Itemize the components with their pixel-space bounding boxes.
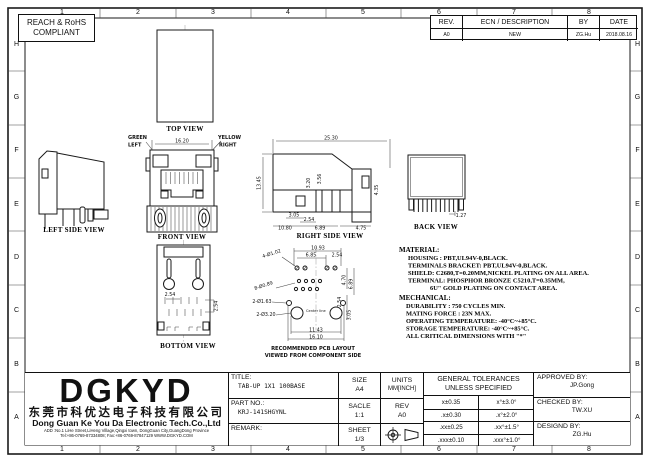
rev-row: REV A0	[381, 398, 423, 423]
mechanical-heading: MECHANICAL:	[399, 294, 451, 302]
zone-row: B	[10, 360, 23, 370]
mechanical-line: OPERATING TEMPERATURE: -40°C~+85°C.	[406, 318, 537, 325]
tolerance-value: .xxx±0.10	[424, 434, 479, 447]
tolerances-cell: GENERAL TOLERANCES UNLESS SPECIFIED x±0.…	[423, 373, 533, 446]
back-view-outline	[408, 155, 465, 199]
led-left-label-2: LEFT	[128, 143, 142, 149]
checked-row: CHECKED BY: TW.XU	[534, 397, 630, 421]
pcb-dim-254r: 2.54	[337, 297, 343, 308]
pcb-holes	[294, 279, 321, 290]
designed-value: ZG.Hu	[537, 430, 627, 438]
approved-row: APPROVED BY: JP.Gong	[534, 373, 630, 397]
third-angle-projection-icon	[383, 426, 421, 444]
material-line: TERMINAL: PHOSPHOR BRONZE C5210,T=0.35MM…	[408, 278, 565, 285]
tolerance-value: x°±3.0°	[479, 396, 534, 409]
company-cell: DGKYD 东莞市科优达电子科技有限公司 Dong Guan Ke You Da…	[25, 373, 228, 446]
pcb-dim-689: 6.89	[349, 279, 355, 290]
sheet-value: 1/3	[355, 435, 364, 444]
zone-col: 7	[506, 445, 522, 455]
zone-row: G	[631, 93, 644, 103]
engineering-drawing-sheet: { "sheet": { "compliance": ["REACH & RoH…	[0, 0, 650, 462]
back-view-pins	[409, 199, 464, 212]
zone-row: A	[631, 413, 644, 423]
material-line: 6U" GOLD PLATING ON CONTACT AREA.	[430, 285, 558, 292]
pcb-label-line1: RECOMMENDED PCB LAYOUT	[271, 346, 355, 352]
zone-row: F	[631, 146, 644, 156]
material-line: HOUSING : PBT,UL94V-0,BLACK.	[408, 255, 508, 262]
rev-label: REV	[395, 403, 409, 411]
revision-table: REV. ECN / DESCRIPTION BY DATE A0 NEW ZG…	[430, 15, 637, 40]
material-heading: MATERIAL:	[399, 246, 439, 254]
pcb-layout: 10.93 6.85 2.54 4-Ø1.02 8-Ø0.89 2-Ø1.63 …	[252, 246, 361, 360]
pcb-center-note: Center line	[306, 309, 327, 313]
back-dim-127: 1.27	[456, 213, 467, 219]
zone-row: A	[10, 413, 23, 423]
zone-row: C	[10, 306, 23, 316]
rev-cell-date: 2018.08.16	[600, 29, 638, 41]
tolerance-value: .x°±2.0°	[479, 409, 534, 422]
checked-value: TW.XU	[537, 406, 627, 414]
front-dim-width: 16.20	[175, 139, 189, 145]
zone-row: F	[10, 146, 23, 156]
zone-row: E	[631, 200, 644, 210]
material-line: SHIELD: C2680,T=0.20MM,NICKEL PLATING ON…	[408, 270, 589, 277]
material-line: TERMINALS BRACKET: PBT,UL94V-0,BLACK.	[408, 263, 548, 270]
pcb-dim-1610: 16.10	[309, 335, 323, 341]
title-block: DGKYD 东莞市科优达电子科技有限公司 Dong Guan Ke You Da…	[25, 372, 630, 445]
pcb-callout-pads: 4-Ø1.02	[261, 247, 281, 260]
pcb-dim-1093: 10.93	[311, 246, 325, 252]
pcb-dim-254t: 2.54	[332, 253, 343, 259]
material-notes: MATERIAL: HOUSING : PBT,UL94V-0,BLACK. T…	[399, 246, 589, 292]
remark-label: REMARK:	[231, 425, 336, 432]
pcb-dim-470: 4.70	[342, 275, 348, 286]
units-value: MM[INCH]	[388, 385, 416, 394]
zone-row: H	[631, 40, 644, 50]
zone-col: 3	[205, 445, 221, 455]
compliance-line2: COMPLIANT	[33, 28, 80, 38]
rsv-dim-356: 3.56	[317, 174, 323, 185]
rev-cell-ecn: NEW	[463, 29, 568, 41]
compliance-line1: REACH & RoHS	[27, 18, 86, 28]
tolerances-header: GENERAL TOLERANCES UNLESS SPECIFIED	[424, 373, 533, 396]
remark-row: REMARK:	[229, 423, 338, 446]
zone-row: E	[10, 200, 23, 210]
signatures-cell: APPROVED BY: JP.Gong CHECKED BY: TW.XU D…	[533, 373, 630, 446]
left-side-view-label: LEFT SIDE VIEW	[43, 226, 105, 234]
projection-row	[381, 423, 423, 446]
pcb-big-hole-right	[330, 307, 342, 319]
compliance-box: REACH & RoHS COMPLIANT	[18, 14, 95, 42]
mechanical-notes: MECHANICAL: DURABILITY : 750 CYCLES MIN.…	[399, 294, 537, 340]
led-right-label-2: RIGHT	[219, 143, 237, 149]
tolerance-value: .xxx°±1.0°	[479, 434, 534, 447]
zone-col: 2	[130, 8, 146, 18]
mechanical-line: DURABILITY : 750 CYCLES MIN.	[406, 303, 506, 310]
mechanical-line: STORAGE TEMPERATURE: -40°C~+85°C.	[406, 326, 530, 333]
top-view-outline	[157, 30, 213, 122]
rev-cell-rev: A0	[431, 29, 463, 41]
zone-col: 2	[130, 445, 146, 455]
top-view: TOP VIEW	[157, 25, 213, 133]
tolerances-header-line1: GENERAL TOLERANCES	[437, 375, 519, 384]
sheet-label: SHEET	[348, 427, 371, 435]
size-value: A4	[355, 385, 363, 394]
bottom-view-label: BOTTOM VIEW	[160, 342, 216, 350]
company-contact: Tel:+86-0769-87334808; Fax:+86-0769-8784…	[60, 433, 192, 438]
zone-row: B	[631, 360, 644, 370]
bottom-dim-254b: 2.54	[214, 301, 220, 312]
led-left-label-1: GREEN	[128, 135, 147, 141]
zone-col: 5	[355, 8, 371, 18]
scale-value: 1:1	[355, 411, 364, 420]
part-no-label: PART NO.:	[231, 400, 336, 407]
right-side-view-label: RIGHT SIDE VIEW	[297, 232, 364, 240]
designed-row: DESIGND BY: ZG.Hu	[534, 421, 630, 445]
pcb-callout-big: 2-Ø3.20	[256, 311, 275, 318]
front-view-label: FRONT VIEW	[158, 233, 206, 241]
units-row: UNITS MM[INCH]	[381, 373, 423, 398]
scale-row: SACLE 1:1	[339, 398, 380, 423]
rsv-dim-320: 3.20	[306, 178, 312, 189]
rsv-dim-689: 6.89	[315, 226, 326, 232]
tolerance-value: .x±0.30	[424, 409, 479, 422]
zone-row: C	[631, 306, 644, 316]
title-value: TAB-UP 1X1 100BASE	[231, 381, 336, 390]
part-no-row: PART NO.: KRJ-141SHGYNL	[229, 398, 338, 423]
company-logo: DGKYD	[59, 374, 193, 407]
size-row: SIZE A4	[339, 373, 380, 398]
bottom-view-outline	[157, 245, 210, 335]
pcb-big-hole-left	[291, 307, 303, 319]
size-label: SIZE	[352, 377, 367, 385]
company-name-en: Dong Guan Ke You Da Electronic Tech.Co.,…	[32, 419, 221, 428]
zone-col: 6	[431, 445, 447, 455]
mechanical-line: ALL CRITICAL DIMENSIONS WITH "*"	[406, 333, 526, 340]
pcb-dim-685: 6.85	[306, 253, 317, 259]
rsv-dim-254: 2.54	[304, 217, 315, 223]
designed-label: DESIGND BY:	[537, 423, 627, 430]
zone-row: G	[10, 93, 23, 103]
pcb-dim-1143: 11.43	[309, 328, 323, 334]
tolerance-value: .xx°±1.5°	[479, 421, 534, 434]
zone-col: 1	[54, 445, 70, 455]
title-row: TITLE: TAB-UP 1X1 100BASE	[229, 373, 338, 398]
rsv-dim-2530: 25.30	[324, 136, 338, 142]
rev-header-ecn: ECN / DESCRIPTION	[463, 16, 568, 29]
tolerance-value: .xx±0.25	[424, 421, 479, 434]
zone-row: D	[631, 253, 644, 263]
rsv-dim-1345: 13.45	[257, 176, 263, 190]
approved-label: APPROVED BY:	[537, 374, 627, 381]
bottom-view: 2.54 2.54 BOTTOM VIEW	[157, 240, 220, 350]
rev-header-date: DATE	[600, 16, 638, 29]
tolerance-value: x±0.35	[424, 396, 479, 409]
part-no-value: KRJ-141SHGYNL	[231, 407, 336, 416]
zone-row: D	[10, 253, 23, 263]
bottom-dim-254a: 2.54	[165, 292, 176, 298]
led-right-label-1: YELLOW	[217, 135, 241, 141]
left-side-view: LEFT SIDE VIEW	[39, 151, 108, 234]
pcb-dim-305: 3.05	[347, 310, 353, 321]
rev-cell-by: ZG.Hu	[568, 29, 600, 41]
sheet-row: SHEET 1/3	[339, 423, 380, 446]
units-rev-projection-cell: UNITS MM[INCH] REV A0	[380, 373, 423, 446]
zone-col: 4	[280, 8, 296, 18]
size-scale-sheet-cell: SIZE A4 SACLE 1:1 SHEET 1/3	[338, 373, 380, 446]
rev-header-by: BY	[568, 16, 600, 29]
rsv-dim-305: 3.05	[289, 213, 300, 219]
title-part-remark-cell: TITLE: TAB-UP 1X1 100BASE PART NO.: KRJ-…	[228, 373, 338, 446]
units-label: UNITS	[392, 377, 412, 385]
zone-col: 4	[280, 445, 296, 455]
pcb-callout-small: 2-Ø1.63	[252, 298, 271, 305]
rev-value: A0	[398, 411, 406, 420]
front-view: 16.20 GREEN LEFT YELLOW RIGHT FRONT VIEW	[128, 135, 241, 241]
top-view-label: TOP VIEW	[166, 125, 203, 133]
tolerances-grid: x±0.35 x°±3.0° .x±0.30 .x°±2.0° .xx±0.25…	[424, 396, 533, 446]
rev-header-rev: REV.	[431, 16, 463, 29]
scale-label: SACLE	[348, 403, 370, 411]
right-side-view: 25.30 13.45 3.20 3.56 4.35 3.05 2.54 10.…	[257, 136, 391, 241]
pcb-callout-holes: 8-Ø0.89	[253, 279, 273, 292]
approved-value: JP.Gong	[537, 381, 627, 389]
mechanical-line: MATING FORCE : 23N MAX.	[406, 311, 492, 318]
rsv-dim-435: 4.35	[374, 185, 380, 196]
back-view: 1.27 BACK VIEW	[408, 155, 466, 231]
rsv-dim-1080: 10.80	[278, 226, 292, 232]
checked-label: CHECKED BY:	[537, 399, 627, 406]
title-label: TITLE:	[231, 374, 336, 381]
back-view-label: BACK VIEW	[414, 223, 458, 231]
rsv-dim-475: 4.75	[356, 226, 367, 232]
zone-col: 5	[355, 445, 371, 455]
tolerances-header-line2: UNLESS SPECIFIED	[445, 384, 512, 393]
zone-col: 3	[205, 8, 221, 18]
zone-col: 8	[581, 445, 597, 455]
pcb-label-line2: VIEWED FROM COMPONENT SIDE	[265, 353, 362, 359]
